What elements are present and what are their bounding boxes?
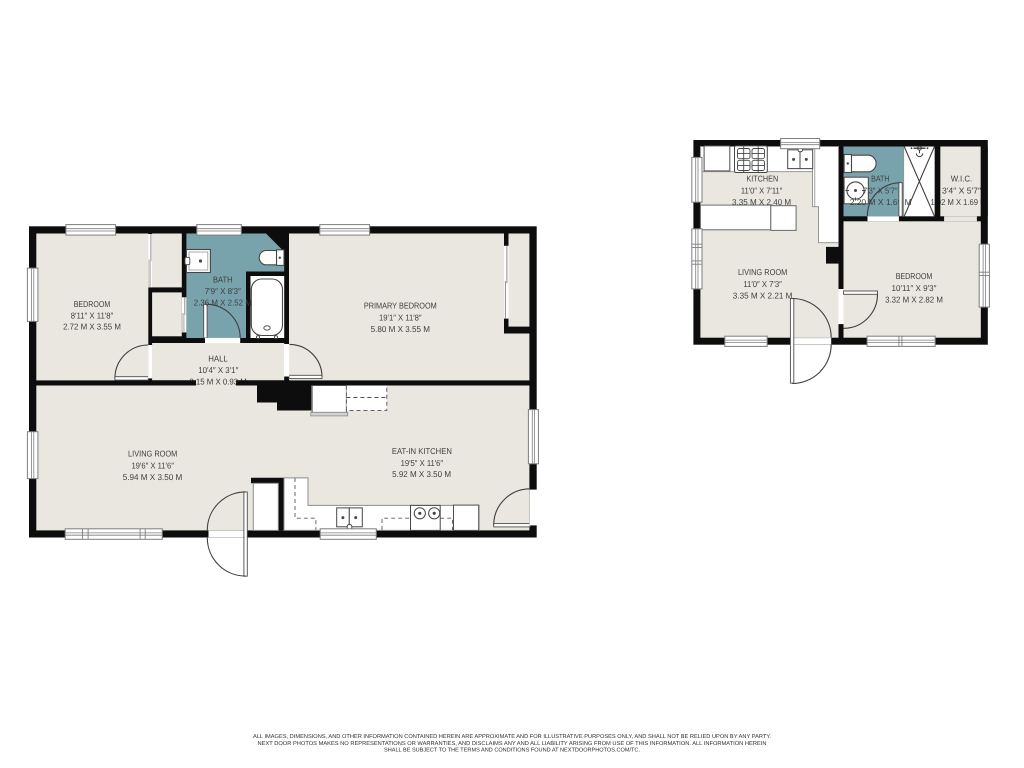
- svg-text:NEXT DOOR PHOTOS MAKES NO REPR: NEXT DOOR PHOTOS MAKES NO REPRESENTATION…: [258, 741, 767, 747]
- svg-text:19′6″ X 11′6″: 19′6″ X 11′6″: [131, 461, 174, 471]
- svg-text:BEDROOM: BEDROOM: [896, 271, 933, 281]
- svg-text:7′9″ X 8′3″: 7′9″ X 8′3″: [205, 286, 241, 296]
- svg-text:ALL IMAGES, DIMENSIONS, AND OT: ALL IMAGES, DIMENSIONS, AND OTHER INFORM…: [253, 734, 771, 740]
- svg-text:5.94 M X 3.50 M: 5.94 M X 3.50 M: [123, 472, 183, 482]
- svg-text:3′4″ X 5′7″: 3′4″ X 5′7″: [942, 186, 981, 196]
- svg-text:5.80 M X 3.55 M: 5.80 M X 3.55 M: [371, 324, 430, 334]
- svg-text:W.I.C.: W.I.C.: [951, 174, 973, 184]
- svg-text:PRIMARY BEDROOM: PRIMARY BEDROOM: [364, 301, 437, 311]
- svg-text:10′4″ X 3′1″: 10′4″ X 3′1″: [198, 365, 238, 375]
- svg-text:3.32 M X 2.82 M: 3.32 M X 2.82 M: [885, 295, 943, 305]
- svg-text:11′0″ X 7′3″: 11′0″ X 7′3″: [743, 279, 782, 289]
- svg-text:10′11″ X 9′3″: 10′11″ X 9′3″: [892, 283, 937, 293]
- svg-text:BATH: BATH: [213, 275, 233, 285]
- svg-text:BATH: BATH: [871, 174, 889, 184]
- svg-text:LIVING ROOM: LIVING ROOM: [128, 449, 177, 459]
- svg-text:SHALL BE SUBJECT TO THE TERMS: SHALL BE SUBJECT TO THE TERMS AND CONDIT…: [384, 747, 640, 754]
- svg-text:5.92 M X 3.50 M: 5.92 M X 3.50 M: [392, 469, 451, 479]
- svg-text:KITCHEN: KITCHEN: [746, 174, 778, 184]
- svg-text:2.36 M X 2.52 M: 2.36 M X 2.52 M: [194, 297, 252, 307]
- svg-text:3.35 M X 2.21 M: 3.35 M X 2.21 M: [733, 290, 793, 300]
- svg-text:7′3″ X 5′7″: 7′3″ X 5′7″: [863, 186, 898, 196]
- svg-text:19′5″ X 11′6″: 19′5″ X 11′6″: [401, 458, 444, 468]
- svg-text:8′11″ X 11′8″: 8′11″ X 11′8″: [71, 311, 114, 321]
- svg-text:19′1″ X 11′8″: 19′1″ X 11′8″: [379, 312, 422, 322]
- svg-text:HALL: HALL: [208, 354, 228, 364]
- svg-text:BEDROOM: BEDROOM: [74, 299, 111, 309]
- svg-text:2.72 M X 3.55 M: 2.72 M X 3.55 M: [63, 322, 121, 332]
- svg-text:11′0″ X 7′11″: 11′0″ X 7′11″: [741, 186, 783, 196]
- svg-text:EAT-IN KITCHEN: EAT-IN KITCHEN: [392, 446, 452, 456]
- svg-text:3.35 M X 2.40 M: 3.35 M X 2.40 M: [732, 197, 791, 207]
- svg-text:LIVING ROOM: LIVING ROOM: [738, 267, 787, 277]
